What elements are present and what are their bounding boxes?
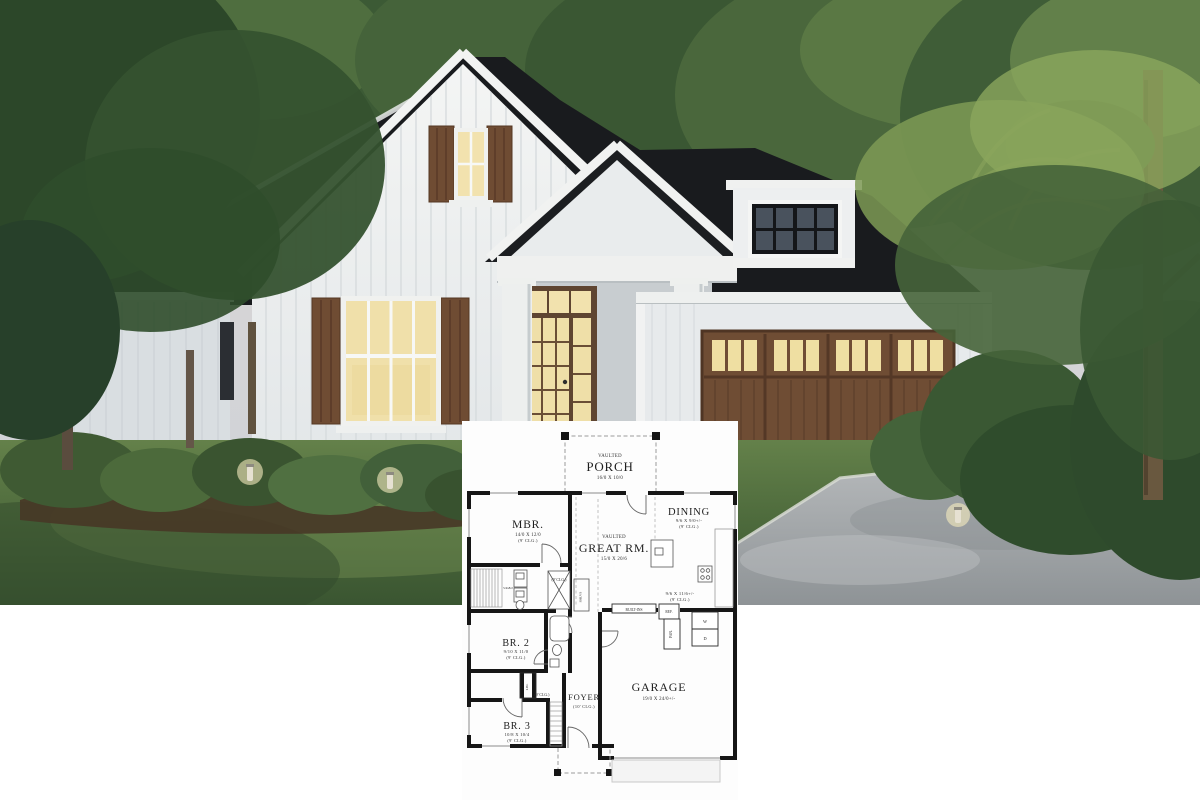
dining-dims: 9/6 X 9/0+/- <box>676 518 703 523</box>
mbr-clg: (9' CLG.) <box>518 538 538 543</box>
dining-clg: (9' CLG.) <box>679 524 699 529</box>
dormer <box>726 180 862 268</box>
master-bath-clg: (9' CLG.) <box>552 578 568 582</box>
br2-clg: (9' CLG.) <box>506 655 525 660</box>
hall-clg: (9' CLG.) <box>535 693 551 697</box>
pantry-label: PAN. <box>669 630 673 638</box>
porch-label: PORCH <box>586 459 633 474</box>
page: VAULTED PORCH 16/0 X 10/0 MBR. 14/0 X 12… <box>0 0 1200 800</box>
left-shutter <box>312 298 340 424</box>
built-ins-label: BUILT-INS <box>626 608 643 612</box>
kitchen-clg: (9' CLG.) <box>670 597 690 602</box>
foyer-label: FOYER <box>568 692 600 702</box>
garage-dims: 19/0 X 24/0+/- <box>643 697 676 702</box>
porch-dims: 16/0 X 10/0 <box>597 476 624 481</box>
transom-window <box>527 291 591 313</box>
great-rm-vaulted-label: VAULTED <box>602 535 626 540</box>
garage-apron <box>612 760 720 782</box>
main-window <box>312 296 469 433</box>
porch-post <box>561 432 569 440</box>
front-door <box>521 286 597 442</box>
floor-plan: VAULTED PORCH 16/0 X 10/0 MBR. 14/0 X 12… <box>462 421 738 800</box>
path-light <box>946 503 970 527</box>
side-window <box>220 322 234 400</box>
mbr-label: MBR. <box>512 519 544 531</box>
upper-window <box>429 126 512 207</box>
linen-label: LIN. <box>525 684 529 691</box>
foyer-clg: (10' CLG.) <box>573 704 595 709</box>
right-shutter <box>441 298 469 424</box>
br3-clg: (9' CLG.) <box>507 738 526 743</box>
front-shrubs <box>0 432 515 534</box>
br3-dims: 10/8 X 10/4 <box>505 732 530 737</box>
dining-label: DINING <box>668 507 710 518</box>
floor-plan-drawing: VAULTED PORCH 16/0 X 10/0 MBR. 14/0 X 12… <box>462 421 738 800</box>
door-glass <box>529 318 569 438</box>
porch-post <box>652 432 660 440</box>
garage-label: GARAGE <box>632 680 687 694</box>
br2-dims: 9/10 X 11/0 <box>504 649 529 654</box>
mbr-closet-dims: 5/4x8/2 <box>503 586 513 590</box>
br2-label: BR. 2 <box>502 638 529 649</box>
door-handle <box>563 380 567 384</box>
path-light <box>237 459 263 485</box>
great-rm-label: GREAT RM. <box>579 541 649 555</box>
shelves-label: SHLVS <box>579 592 583 603</box>
kitchen-dims: 9/6 X 11/6+/- <box>666 591 695 596</box>
dryer-label: D <box>703 636 706 641</box>
left-shutter <box>429 126 454 202</box>
great-rm-dims: 15/0 X 20/6 <box>601 557 628 562</box>
path-light <box>377 467 403 493</box>
ref-label: REF. <box>665 610 672 614</box>
right-shutter <box>487 126 512 202</box>
br3-label: BR. 3 <box>503 721 530 732</box>
